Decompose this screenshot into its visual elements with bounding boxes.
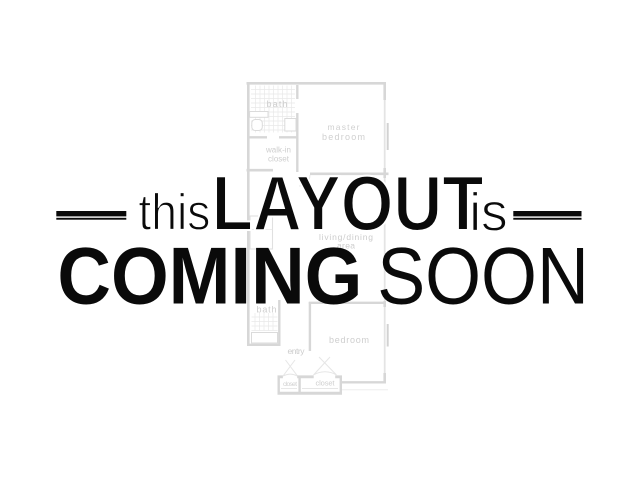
svg-text:SOON: SOON	[377, 232, 589, 322]
svg-text:COMING: COMING	[57, 232, 362, 322]
